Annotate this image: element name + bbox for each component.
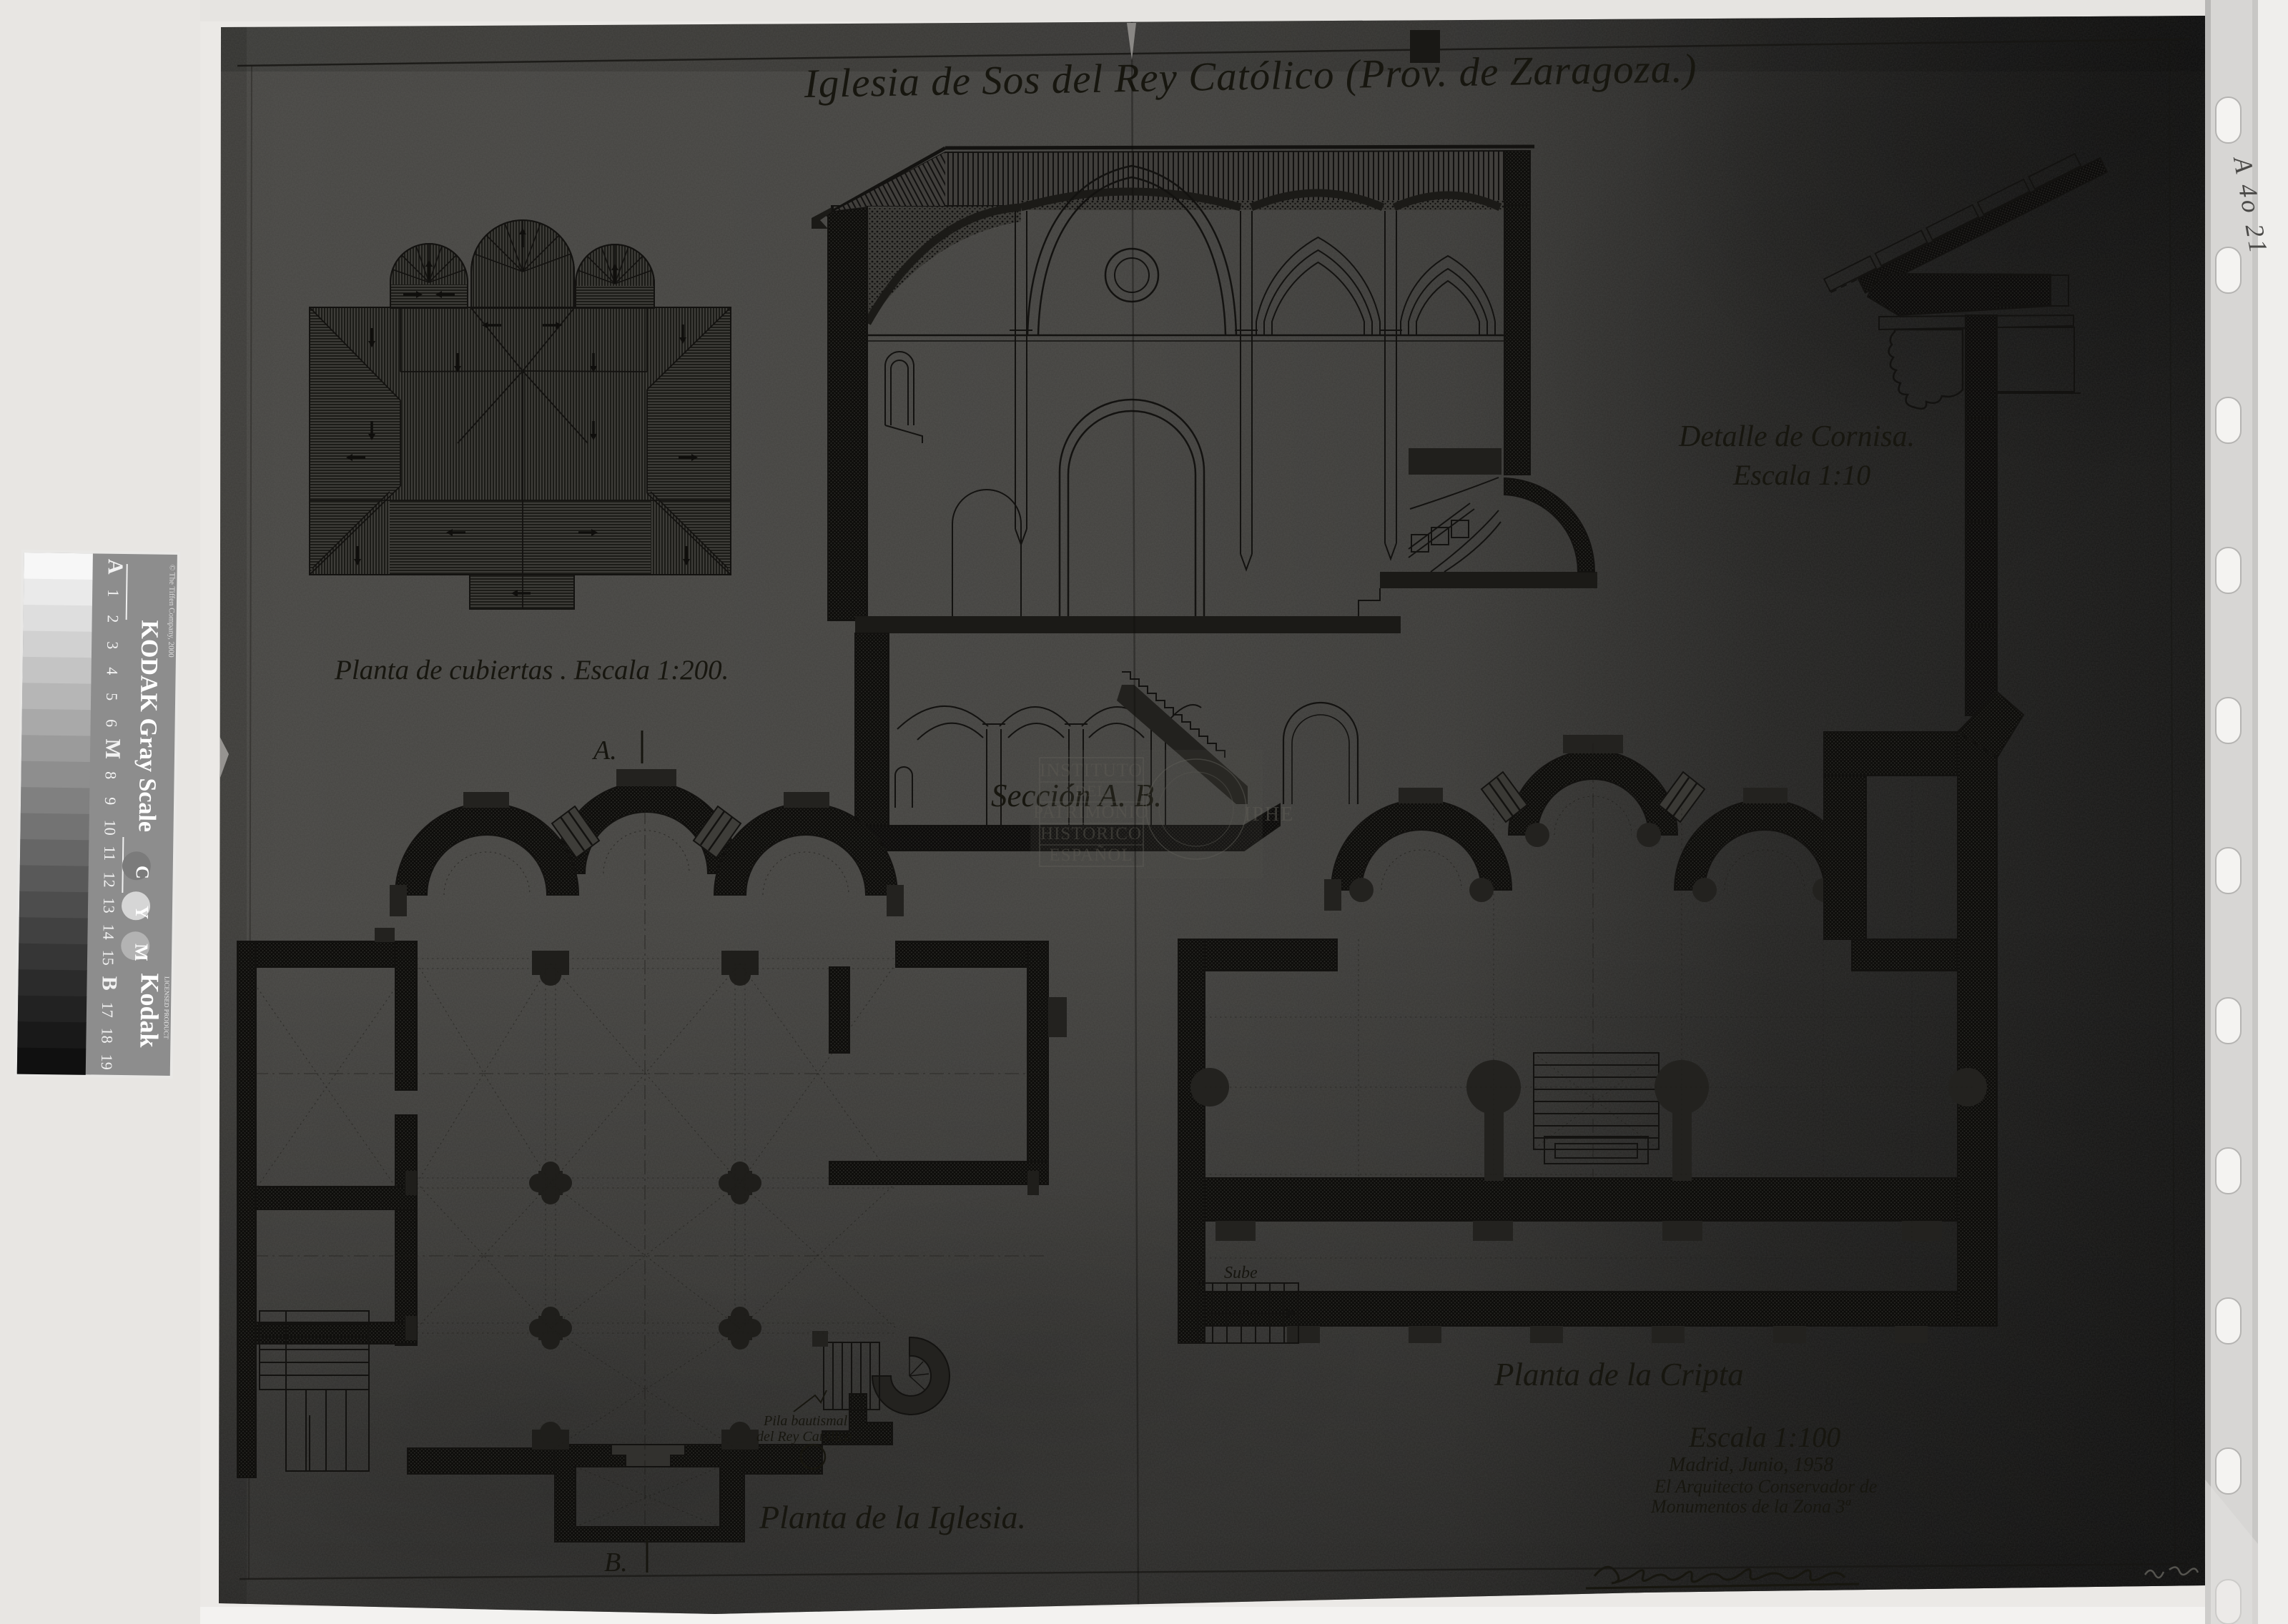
svg-text:LICENSED PRODUCT: LICENSED PRODUCT — [162, 976, 170, 1039]
svg-text:18: 18 — [98, 1028, 116, 1044]
svg-text:4: 4 — [104, 667, 122, 675]
svg-text:Y: Y — [132, 906, 152, 919]
svg-text:Monumentos de la Zona 3ª: Monumentos de la Zona 3ª — [1650, 1496, 1852, 1517]
svg-text:Planta de cubiertas . Escala 1: Planta de cubiertas . Escala 1:200. — [334, 655, 729, 685]
svg-text:M: M — [101, 738, 124, 759]
svg-text:10: 10 — [101, 820, 119, 836]
svg-text:13: 13 — [100, 898, 118, 914]
svg-text:Planta de la Iglesia.: Planta de la Iglesia. — [759, 1499, 1026, 1535]
svg-text:Pila bautismal: Pila bautismal — [763, 1413, 848, 1429]
svg-text:DEL: DEL — [1075, 782, 1108, 800]
svg-text:© The Tiffen Company, 2000: © The Tiffen Company, 2000 — [167, 565, 177, 658]
svg-text:ESPAÑOL: ESPAÑOL — [1049, 845, 1133, 865]
svg-text:HISTORICO: HISTORICO — [1040, 824, 1142, 843]
svg-text:Escala 1:100: Escala 1:100 — [1688, 1421, 1840, 1453]
svg-text:9: 9 — [102, 797, 119, 805]
svg-text:5: 5 — [103, 693, 121, 700]
svg-text:A.: A. — [591, 736, 617, 766]
svg-text:Escala 1:10: Escala 1:10 — [1732, 459, 1870, 491]
svg-text:INSTITUTO: INSTITUTO — [1040, 760, 1143, 781]
svg-text:B: B — [97, 976, 121, 991]
svg-text:Kodak: Kodak — [134, 973, 164, 1048]
svg-text:El Arquitecto Conservador de: El Arquitecto Conservador de — [1654, 1476, 1877, 1497]
svg-text:del Rey Católico: del Rey Católico — [756, 1429, 852, 1445]
svg-text:M: M — [131, 944, 152, 961]
svg-text:IPHE: IPHE — [1244, 803, 1294, 826]
svg-text:C: C — [132, 866, 153, 879]
svg-text:Madrid, Junio, 1958: Madrid, Junio, 1958 — [1668, 1454, 1833, 1476]
svg-text:14: 14 — [99, 924, 117, 940]
svg-text:2: 2 — [104, 615, 122, 623]
svg-text:3: 3 — [104, 641, 122, 649]
svg-text:A: A — [104, 559, 127, 575]
svg-text:12: 12 — [100, 872, 118, 888]
svg-text:Planta de la Cripta: Planta de la Cripta — [1494, 1357, 1744, 1392]
svg-text:PATRIMONIO: PATRIMONIO — [1033, 803, 1149, 822]
svg-text:6: 6 — [103, 719, 121, 727]
svg-text:KODAK Gray Scale: KODAK Gray Scale — [134, 620, 163, 832]
svg-text:8: 8 — [102, 771, 120, 779]
svg-text:15: 15 — [99, 950, 117, 966]
svg-text:11: 11 — [101, 846, 119, 861]
svg-text:17: 17 — [99, 1002, 117, 1018]
svg-text:Detalle de Cornisa.: Detalle de Cornisa. — [1678, 420, 1915, 453]
svg-text:19: 19 — [98, 1054, 116, 1070]
svg-text:B.: B. — [604, 1548, 628, 1578]
svg-text:Sube: Sube — [1224, 1264, 1258, 1282]
svg-text:1: 1 — [104, 589, 122, 597]
